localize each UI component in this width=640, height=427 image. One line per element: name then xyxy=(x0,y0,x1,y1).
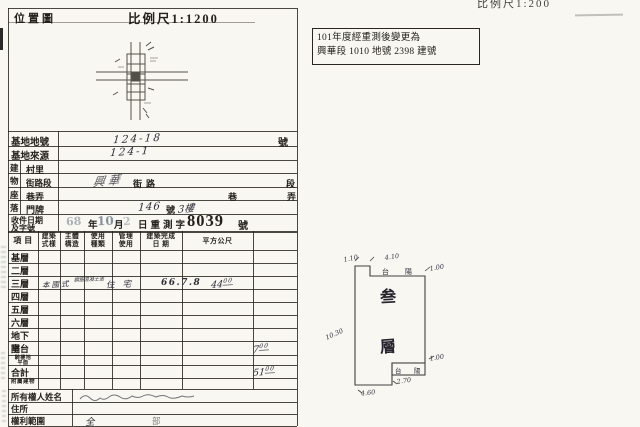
form-grid-hline xyxy=(8,8,297,9)
floor-area-value-decimals: 00 xyxy=(259,342,269,351)
scan-edge-artifact xyxy=(0,28,3,50)
floor-area-value-decimals: 00 xyxy=(265,365,275,374)
floor-plan-char2: 層 xyxy=(379,336,396,356)
table-header-cell: 使用種類 xyxy=(84,232,112,250)
form-grid-hline xyxy=(8,22,255,23)
floor-row-label: 基層 xyxy=(11,251,35,264)
table-header-cell: 項 目 xyxy=(8,232,38,250)
floor-row-label-line1: 附屬建物 xyxy=(11,379,35,385)
scanned-building-registration-document: 位置圖 比例尺1:1200 基地地號 124-18 號 基地來源 124-1 建… xyxy=(0,0,640,427)
resurvey-note-line1: 101年度經重測後變更為 xyxy=(317,31,475,45)
group-char-4: 落 xyxy=(10,202,19,214)
form-grid-hline xyxy=(8,146,297,147)
right-page-scale-label: 比例尺1:200 xyxy=(477,0,551,11)
lane-unit: 弄 xyxy=(287,190,296,203)
resurvey-note-line2: 興華段 1010 地號 2398 建號 xyxy=(317,45,475,59)
table-header-cell: 管理使用 xyxy=(112,232,140,250)
map-panel-title: 位置圖 xyxy=(14,10,56,26)
receipt-day-stamp: 2 xyxy=(123,215,132,229)
dim-left-height: 10.30 xyxy=(325,327,344,342)
form-grid-vline xyxy=(297,8,298,426)
floor-area-value: 4400 xyxy=(211,276,234,290)
third-floor-plan: 台 陽 台 陽 叁 層 1.10 4.10 1.00 10.30 1.00 2.… xyxy=(325,252,525,407)
bleed-through-smudge xyxy=(2,390,6,422)
floor-area-value-integer: 44 xyxy=(211,278,224,290)
table-header-line2: 種類 xyxy=(91,241,106,249)
table-header-line2: 式樣 xyxy=(42,241,57,249)
table-header-line1: 主體 xyxy=(65,233,80,241)
form-grid-vline xyxy=(84,231,85,389)
floor-row-label: 三層 xyxy=(11,277,35,290)
table-header-line1: 建築完成 xyxy=(146,233,175,241)
street-print-text: 街路 xyxy=(133,177,159,190)
floor-style-value: 本國式 xyxy=(42,278,71,290)
map-panel-scale-label: 比例尺1:1200 xyxy=(128,8,219,27)
form-grid-hline xyxy=(8,131,297,132)
dim-balcony-width: 2.70 xyxy=(395,376,411,386)
table-header-line2: 構造 xyxy=(65,241,80,249)
floor-row-label: 四層 xyxy=(11,290,35,303)
receipt-print-text: 日重測字 xyxy=(138,217,188,231)
form-grid-hline xyxy=(8,389,297,390)
site-source-value: 124-1 xyxy=(109,145,150,159)
lane-print-text: 巷 xyxy=(228,190,237,203)
form-grid-hline xyxy=(8,173,297,174)
balcony-bottom-char2: 陽 xyxy=(414,366,421,375)
table-header-cell: 建築完成日 期 xyxy=(140,232,182,250)
form-grid-vline xyxy=(182,231,183,389)
form-grid-hline xyxy=(8,402,297,403)
floor-row-label: 陽台 xyxy=(11,342,35,355)
bleed-through-smudge xyxy=(1,246,6,290)
dim-bottom-offset: 4.60 xyxy=(359,388,375,398)
floor-row-label: 附屬建物 xyxy=(10,379,36,385)
form-grid-hline xyxy=(8,200,297,201)
balcony-bottom-char1: 台 xyxy=(395,366,402,375)
table-header-line1: 平方公尺 xyxy=(203,237,233,245)
table-header-line2: 日 期 xyxy=(153,241,170,249)
floor-structure-value: 鋼筋混凝土造 xyxy=(74,276,104,283)
form-grid-hline xyxy=(8,214,297,215)
floor-plan-char1: 叁 xyxy=(379,286,398,306)
floor-row-label: 二層 xyxy=(11,264,35,277)
form-grid-vline xyxy=(38,231,39,389)
form-grid-vline xyxy=(253,231,254,389)
table-header-line1: 使用 xyxy=(91,233,106,241)
site-lot-value: 124-18 xyxy=(113,132,163,147)
dim-top-depth: 1.00 xyxy=(429,262,445,272)
receipt-number-unit: 號 xyxy=(238,217,248,232)
table-header-cell: 主體構造 xyxy=(60,232,84,250)
table-header-cell: 建築式樣 xyxy=(38,232,60,250)
table-header-line1: 建築 xyxy=(42,233,57,241)
floor-area-value: 700 xyxy=(252,342,269,356)
floor-row-label: 合計 xyxy=(11,366,35,379)
bleed-through-smudge xyxy=(1,352,5,380)
floor-use-value: 住宅 xyxy=(106,277,139,290)
form-grid-vline xyxy=(8,8,9,426)
form-grid-hline xyxy=(8,160,297,161)
form-grid-vline xyxy=(112,231,113,389)
scan-artifact-dash xyxy=(575,14,623,17)
door-number-value: 146 xyxy=(138,200,162,214)
group-char-2: 物 xyxy=(10,175,19,187)
floor-area-value-decimals: 00 xyxy=(223,276,233,285)
receipt-month-stamp: 10 xyxy=(97,214,114,229)
floor-row-label-line1: 騎樓地 xyxy=(15,356,32,361)
resurvey-note-box: 101年度經重測後變更為 興華段 1010 地號 2398 建號 xyxy=(312,28,480,65)
location-map-sketch xyxy=(88,34,208,130)
form-grid-vline xyxy=(58,131,59,231)
form-grid-vline xyxy=(72,389,73,426)
lane-label: 巷弄 xyxy=(26,190,54,203)
street-unit: 段 xyxy=(286,177,295,190)
form-grid-hline xyxy=(8,414,297,415)
form-grid-hline xyxy=(8,187,297,188)
dim-top-width: 4.10 xyxy=(383,252,399,262)
dim-top-offset: 1.10 xyxy=(343,253,359,264)
balcony-top-char1: 台 xyxy=(382,267,389,276)
floor-completed-date-value: 66.7.8 xyxy=(161,278,201,288)
form-grid-vline xyxy=(20,160,21,214)
table-header-cell: 平方公尺 xyxy=(182,232,253,250)
dim-balcony-depth: 1.00 xyxy=(429,352,445,362)
form-grid-vline xyxy=(60,231,61,389)
receipt-year-stamp: 68 xyxy=(66,215,82,229)
table-header-line1: 項 目 xyxy=(13,236,33,245)
floor-row-label: 五層 xyxy=(11,303,35,316)
balcony-top-char2: 陽 xyxy=(405,267,412,276)
floor-row-label: 六層 xyxy=(11,316,35,329)
floor-area-value: 5100 xyxy=(253,365,276,379)
form-grid-vline xyxy=(140,231,141,389)
village-label: 村里 xyxy=(26,163,54,176)
floor-area-value-integer: 51 xyxy=(253,367,266,379)
table-header-line1: 管理 xyxy=(119,233,134,241)
table-header-line2: 使用 xyxy=(119,241,134,249)
